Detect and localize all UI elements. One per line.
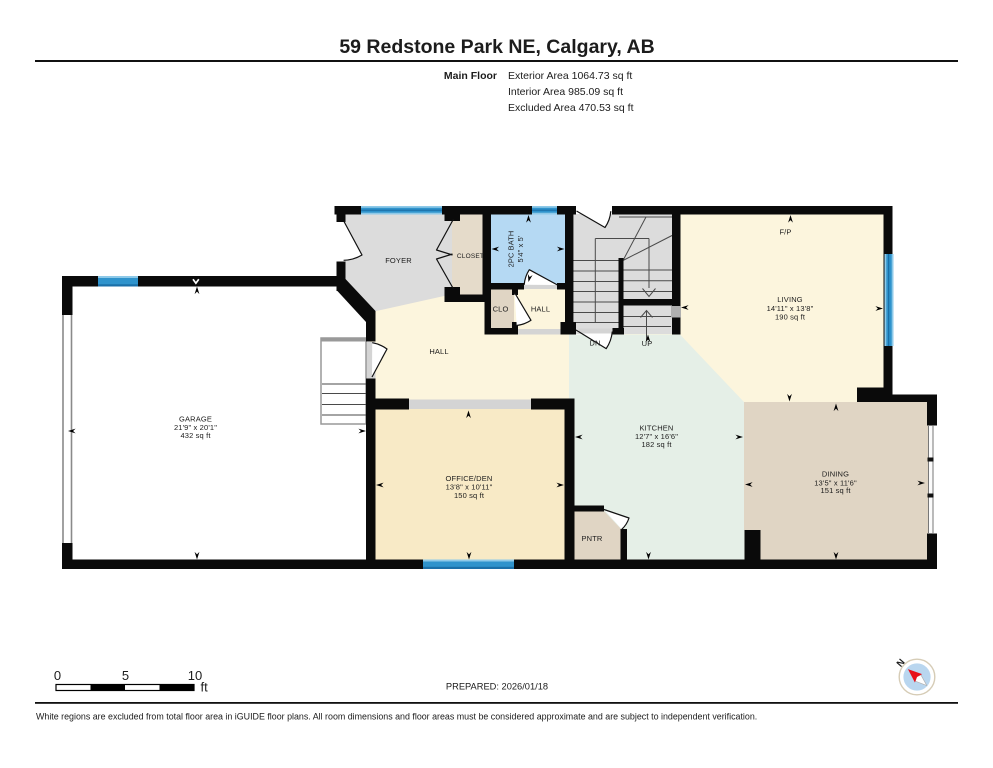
svg-text:FOYER: FOYER — [385, 256, 412, 265]
svg-text:DN: DN — [589, 339, 600, 348]
svg-text:HALL: HALL — [531, 304, 550, 313]
svg-text:5: 5 — [122, 668, 129, 683]
svg-text:ft: ft — [201, 680, 209, 695]
svg-text:432 sq ft: 432 sq ft — [180, 431, 211, 440]
svg-text:2PC BATH: 2PC BATH — [507, 231, 516, 268]
svg-text:190 sq ft: 190 sq ft — [775, 312, 806, 321]
svg-text:CLOSET: CLOSET — [457, 253, 484, 260]
svg-text:150 sq ft: 150 sq ft — [454, 491, 485, 500]
svg-text:White regions are excluded fro: White regions are excluded from total fl… — [36, 712, 757, 722]
svg-text:0: 0 — [54, 668, 61, 683]
svg-text:F/P: F/P — [779, 228, 791, 237]
svg-text:182 sq ft: 182 sq ft — [641, 440, 672, 449]
svg-text:Interior Area 985.09 sq ft: Interior Area 985.09 sq ft — [508, 86, 623, 98]
svg-text:CLO: CLO — [493, 304, 509, 313]
svg-text:PNTR: PNTR — [581, 534, 602, 543]
svg-text:Main Floor: Main Floor — [444, 70, 497, 82]
svg-text:151 sq ft: 151 sq ft — [820, 486, 851, 495]
svg-text:59 Redstone Park NE, Calgary,: 59 Redstone Park NE, Calgary, AB — [339, 36, 654, 58]
svg-text:UP: UP — [642, 339, 653, 348]
svg-text:DINING: DINING — [822, 469, 849, 478]
svg-text:Exterior Area 1064.73 sq ft: Exterior Area 1064.73 sq ft — [508, 70, 632, 82]
svg-text:HALL: HALL — [429, 347, 448, 356]
svg-text:LIVING: LIVING — [777, 295, 803, 304]
svg-text:Excluded Area 470.53 sq ft: Excluded Area 470.53 sq ft — [508, 102, 634, 114]
svg-text:PREPARED: 2026/01/18: PREPARED: 2026/01/18 — [446, 682, 548, 692]
svg-text:5'4" x 5': 5'4" x 5' — [516, 235, 525, 262]
